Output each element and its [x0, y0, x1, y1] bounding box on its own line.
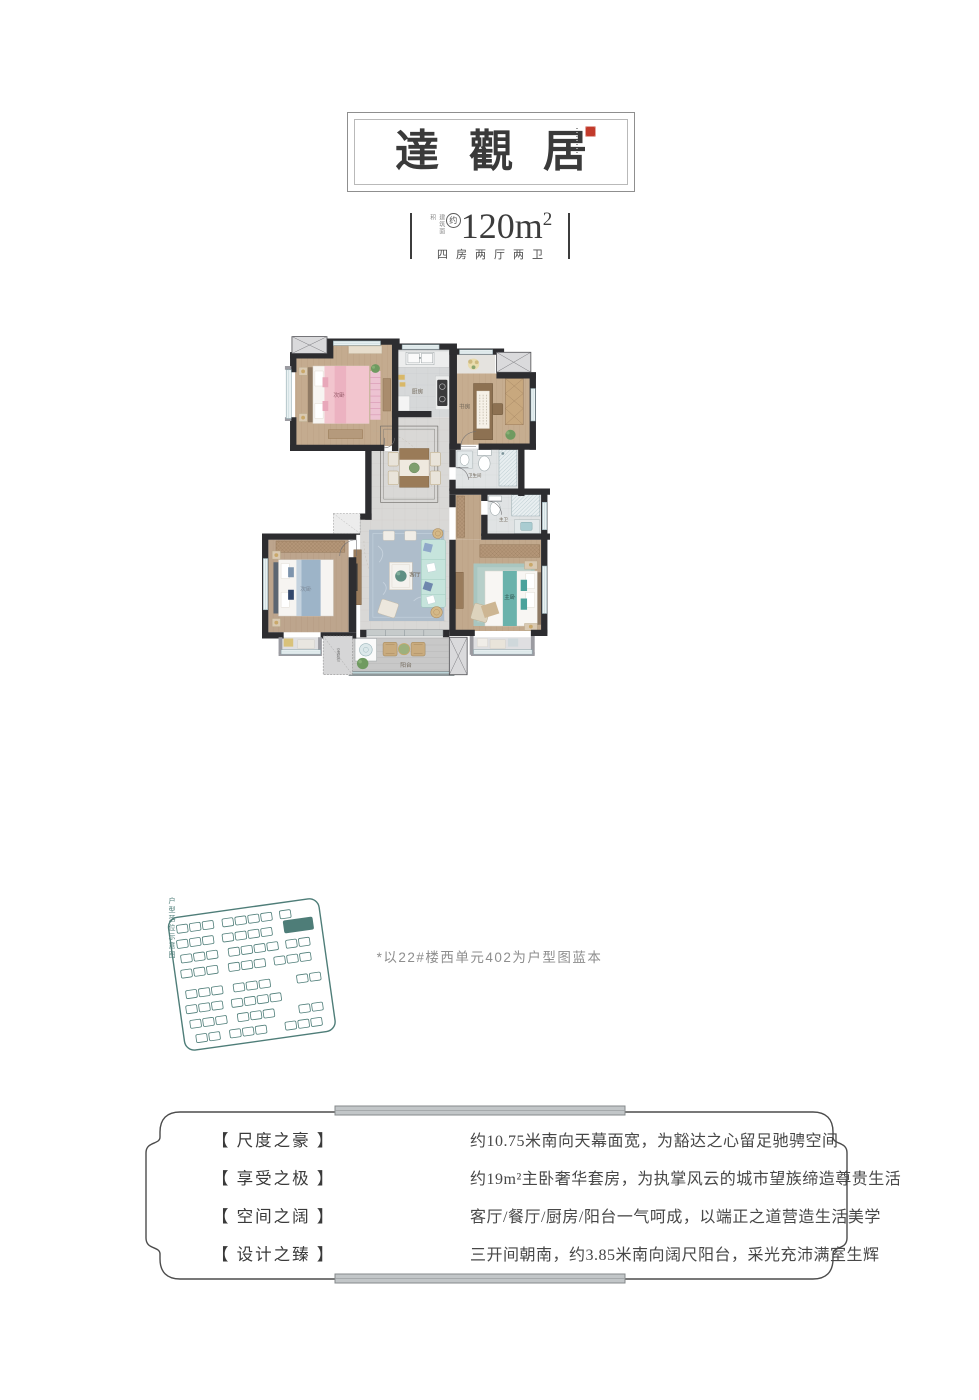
title-plaque: 達觀居: [347, 112, 635, 192]
feature-tag-3: 【 空间之阔 】: [212, 1203, 394, 1227]
feature-desc-4: 三开间朝南，约3.85米南向阔尺阳台，采光充沛满室生辉: [470, 1241, 880, 1265]
page: 達觀居 建筑面积 约 120m2 四房两厅两卫: [0, 0, 979, 1400]
feature-row-4: 【 设计之臻 】 三开间朝南，约3.85米南向阔尺阳台，采光充沛满室生辉: [212, 1241, 832, 1265]
area-value: 120m2: [461, 208, 553, 246]
footnote: *以22#楼西单元402为户型图蓝本: [0, 946, 979, 966]
feature-desc-1: 约10.75米南向天幕面宽，为豁达之心留足驰骋空间: [470, 1127, 839, 1151]
ac-unit-label: 空调机位: [336, 647, 340, 662]
page-title: 達觀居: [365, 130, 617, 174]
red-seal-icon: [585, 126, 596, 137]
bath-label: 卫生间: [468, 472, 482, 479]
approx-badge: 约: [446, 213, 461, 228]
feature-row-1: 【 尺度之豪 】 约10.75米南向天幕面宽，为豁达之心留足驰骋空间: [212, 1127, 832, 1151]
balcony-glass-rail: [349, 672, 455, 674]
feature-row-2: 【 享受之极 】 约19m²主卧奢华套房，为执掌风云的城市望族缔造尊贵生活: [212, 1165, 832, 1189]
area-micro-label: 建筑面积: [428, 214, 446, 240]
siteplan: [148, 890, 348, 1062]
rooms-summary: 四房两厅两卫: [402, 246, 578, 262]
area-number: 120m: [461, 206, 543, 246]
feature-row-3: 【 空间之阔 】 客厅/餐厅/厨房/阳台一气呵成，以端正之道营造生活美学: [212, 1203, 832, 1227]
area-block: 建筑面积 约 120m2 四房两厅两卫: [402, 208, 578, 264]
feature-desc-3: 客厅/餐厅/厨房/阳台一气呵成，以端正之道营造生活美学: [470, 1203, 881, 1227]
title-micro-inscription: [576, 128, 578, 156]
balcony-door: [366, 630, 442, 636]
feature-tag-4: 【 设计之臻 】: [212, 1241, 394, 1265]
area-sup: 2: [543, 209, 553, 230]
floorplan: 次卧 厨房 书房 卫生间 主卫 次卧 客厅 主卧 阳台 空调机位: [262, 336, 722, 896]
feature-tag-2: 【 享受之极 】: [212, 1165, 394, 1189]
feature-tag-1: 【 尺度之豪 】: [212, 1127, 394, 1151]
master-bath-label: 主卫: [499, 516, 508, 522]
feature-desc-2: 约19m²主卧奢华套房，为执掌风云的城市望族缔造尊贵生活: [470, 1165, 901, 1189]
